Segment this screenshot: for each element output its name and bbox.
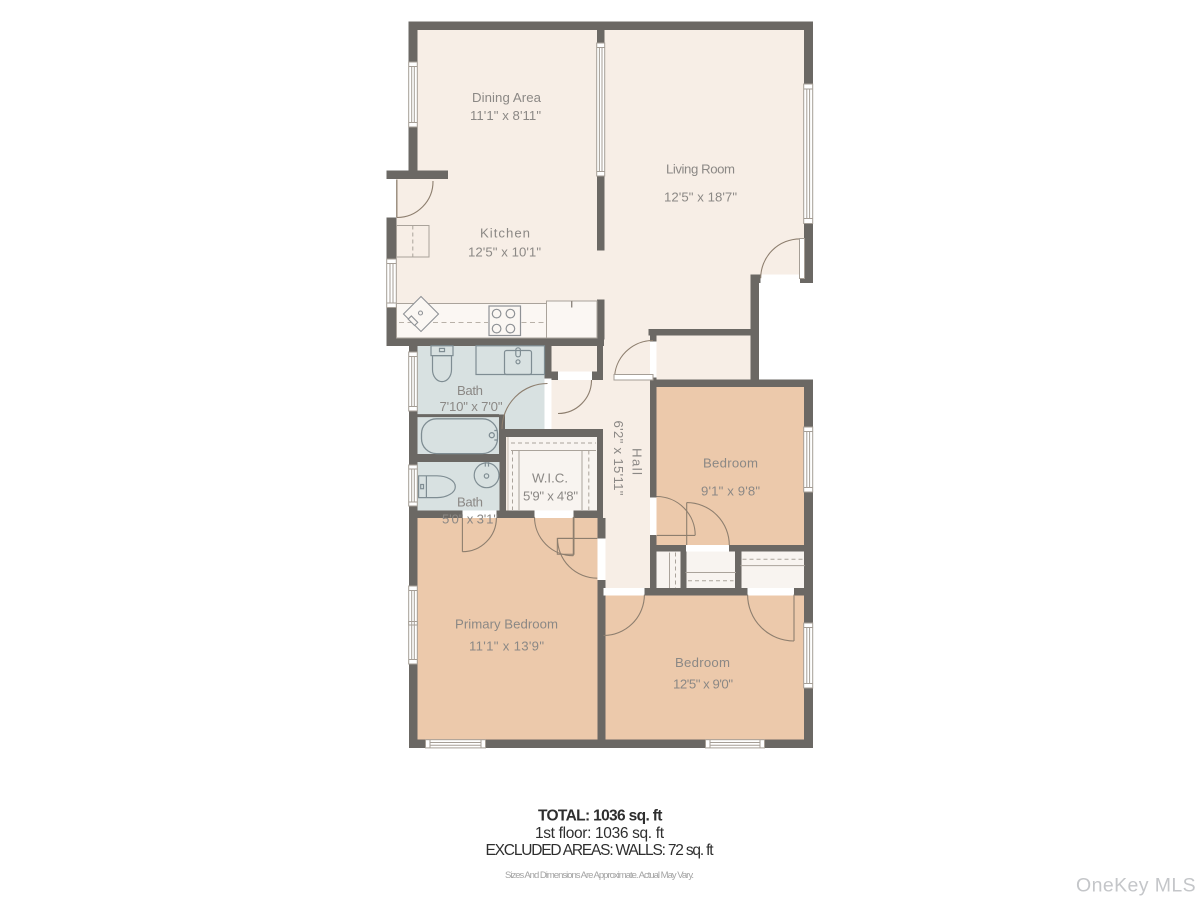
svg-text:11'1" x 13'9": 11'1" x 13'9" [469,639,544,654]
svg-text:Bath: Bath [457,383,483,398]
svg-text:9'1" x 9'8": 9'1" x 9'8" [701,484,760,499]
svg-text:5'9" x 4'8": 5'9" x 4'8" [523,488,578,503]
svg-text:W.I.C.: W.I.C. [532,471,568,486]
svg-text:11'1" x 8'11": 11'1" x 8'11" [470,108,541,123]
svg-text:Bedroom: Bedroom [703,456,758,471]
svg-text:Kitchen: Kitchen [480,226,530,241]
svg-text:12'5" x 9'0": 12'5" x 9'0" [673,677,733,692]
svg-text:Sizes And Dimensions Are Appro: Sizes And Dimensions Are Approximate. Ac… [505,870,694,881]
svg-text:7'10" x 7'0": 7'10" x 7'0" [440,399,503,414]
svg-text:Living Room: Living Room [666,162,735,177]
svg-text:5'0" x 3'1": 5'0" x 3'1" [442,512,498,527]
svg-text:Bedroom: Bedroom [675,655,730,670]
svg-text:1st floor: 1036 sq. ft: 1st floor: 1036 sq. ft [535,825,665,842]
svg-text:OneKey MLS: OneKey MLS [1076,875,1196,897]
svg-text:TOTAL: 1036 sq. ft: TOTAL: 1036 sq. ft [538,808,663,825]
svg-text:Bath: Bath [457,495,483,510]
svg-text:12'5" x 10'1": 12'5" x 10'1" [468,245,541,260]
svg-text:Primary Bedroom: Primary Bedroom [455,617,558,632]
svg-text:EXCLUDED AREAS: WALLS: 72 sq.: EXCLUDED AREAS: WALLS: 72 sq. ft [486,842,715,859]
svg-text:Dining Area: Dining Area [472,90,542,105]
svg-text:12'5" x 18'7": 12'5" x 18'7" [664,190,737,205]
svg-text:6'2" x 15'11": 6'2" x 15'11" [611,421,626,496]
